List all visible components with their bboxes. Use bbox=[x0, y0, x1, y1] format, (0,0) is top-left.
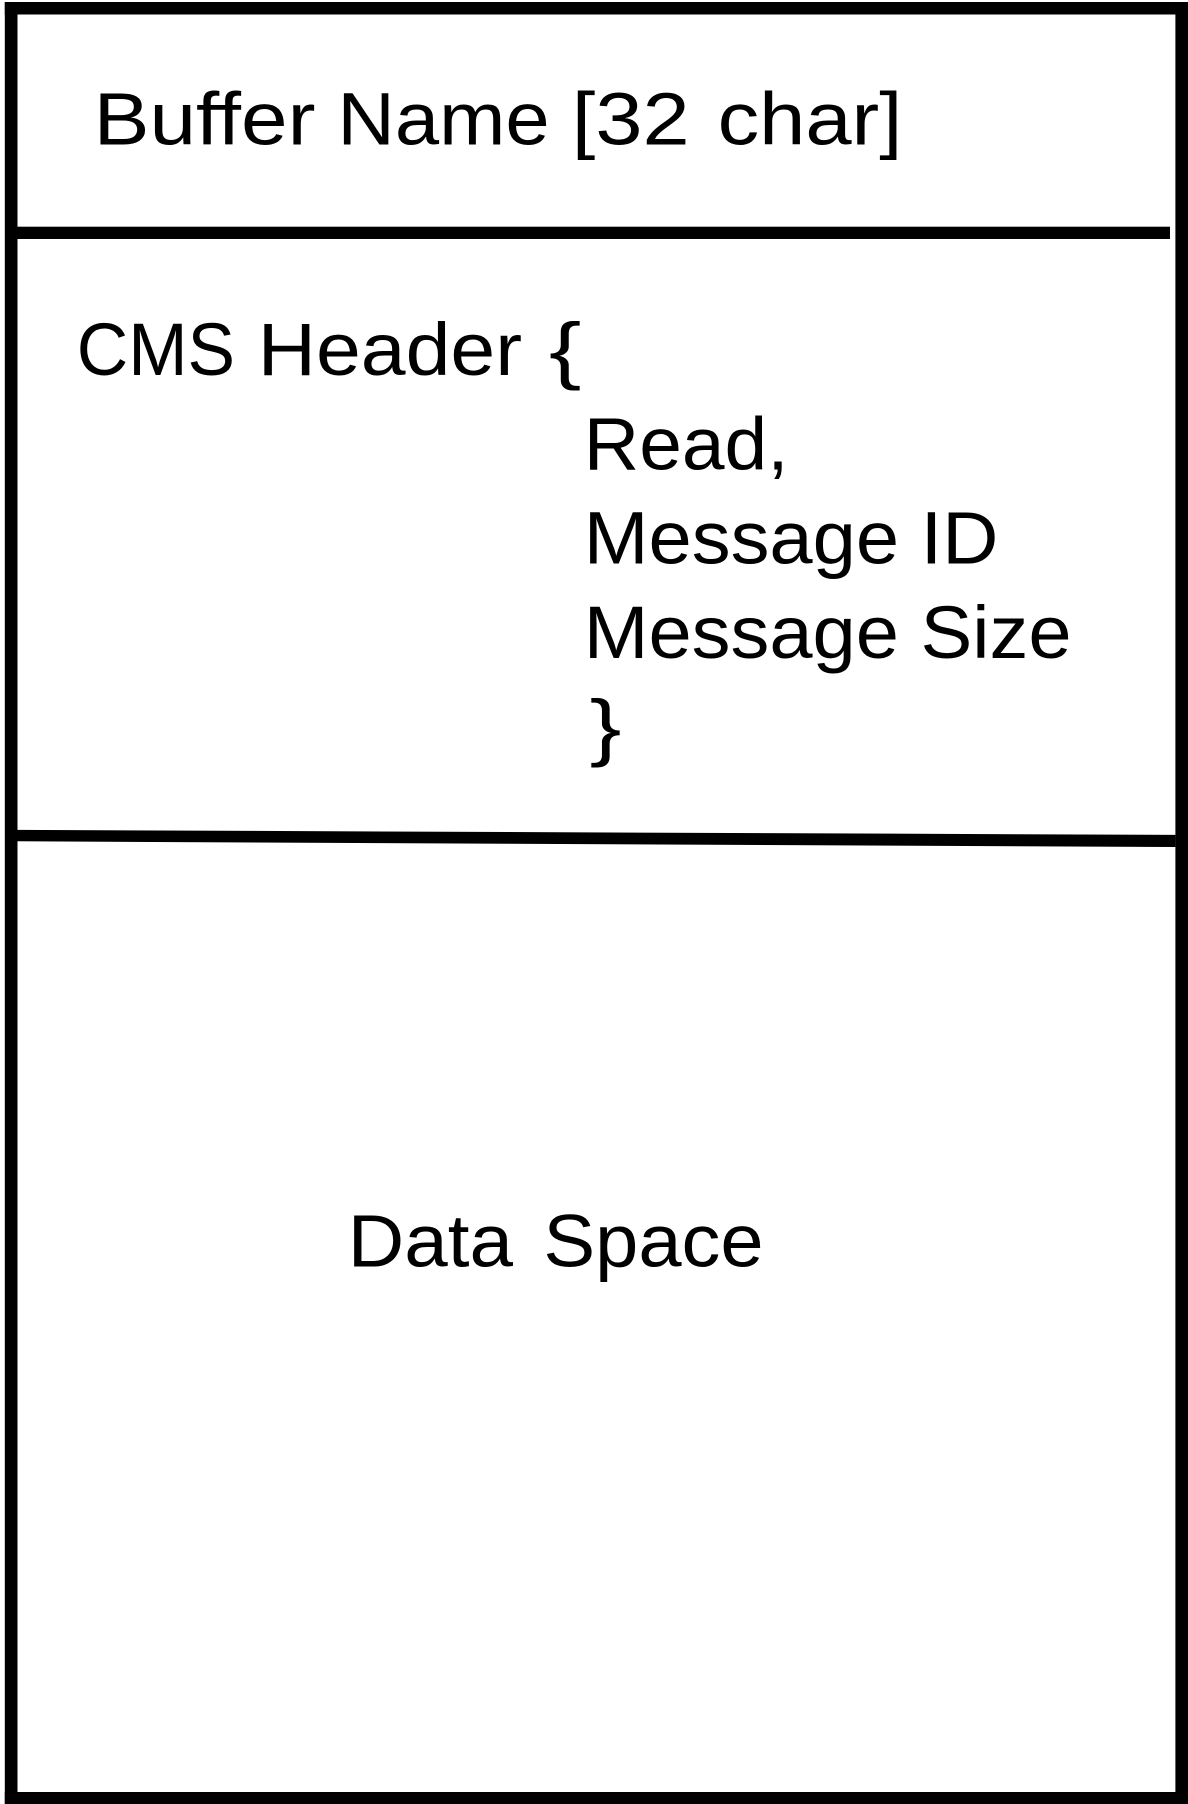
svg-text:Message Size: Message Size bbox=[584, 591, 1072, 674]
svg-text:CMS: CMS bbox=[77, 308, 235, 391]
svg-text:Message ID: Message ID bbox=[584, 497, 999, 580]
svg-text:Data: Data bbox=[348, 1200, 514, 1283]
svg-text:Read,: Read, bbox=[584, 402, 789, 485]
svg-text:Header: Header bbox=[258, 308, 522, 391]
svg-text:}: } bbox=[590, 685, 622, 768]
svg-text:Buffer: Buffer bbox=[94, 77, 316, 160]
svg-text:Name: Name bbox=[337, 77, 549, 160]
svg-text:{: { bbox=[549, 308, 581, 391]
svg-text:Space: Space bbox=[543, 1200, 763, 1283]
svg-text:[32: [32 bbox=[572, 77, 690, 160]
svg-text:char]: char] bbox=[718, 77, 903, 160]
